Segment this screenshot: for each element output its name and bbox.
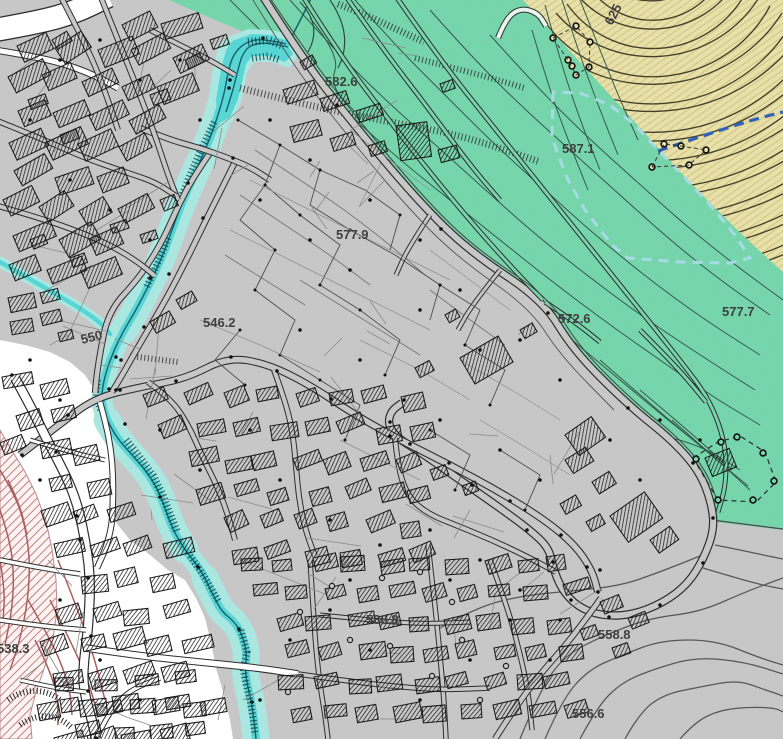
svg-text:577.7: 577.7 [722, 304, 755, 319]
svg-text:577.9: 577.9 [336, 227, 369, 242]
svg-text:558.8: 558.8 [598, 627, 631, 642]
svg-text:538.8: 538.8 [366, 612, 399, 627]
svg-text:556.6: 556.6 [572, 706, 605, 721]
svg-text:587.1: 587.1 [562, 141, 595, 156]
svg-text:572.6: 572.6 [558, 311, 591, 326]
svg-text:538.3: 538.3 [0, 641, 30, 656]
svg-text:546.2: 546.2 [203, 315, 236, 330]
svg-text:582.6: 582.6 [325, 74, 358, 89]
